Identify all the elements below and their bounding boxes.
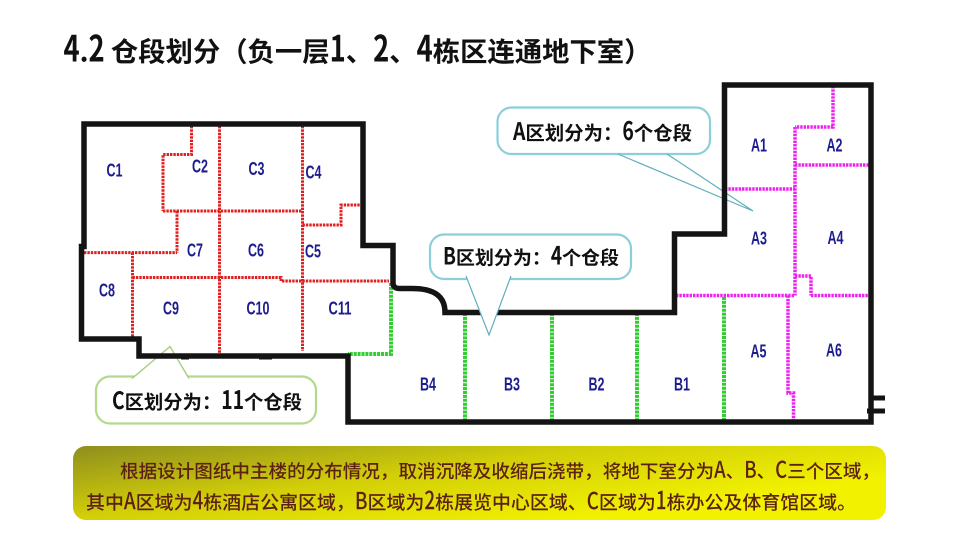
svg-text:C7: C7: [187, 240, 203, 260]
svg-text:C9: C9: [163, 298, 179, 318]
svg-text:B1: B1: [674, 374, 690, 394]
svg-text:A5: A5: [751, 341, 767, 361]
svg-text:C1: C1: [107, 160, 123, 180]
svg-text:A4: A4: [828, 228, 844, 248]
svg-text:A6: A6: [826, 340, 842, 360]
svg-text:B2: B2: [589, 374, 605, 394]
svg-text:B3: B3: [504, 374, 520, 394]
svg-text:C5: C5: [305, 241, 321, 261]
svg-text:C3: C3: [249, 159, 265, 179]
svg-text:B4: B4: [420, 374, 436, 394]
svg-text:C11: C11: [329, 298, 352, 318]
svg-text:C10: C10: [247, 298, 270, 318]
svg-text:C4: C4: [306, 162, 322, 182]
svg-text:C2: C2: [192, 156, 208, 176]
svg-text:A1: A1: [751, 135, 767, 155]
svg-text:A3: A3: [751, 228, 767, 248]
svg-text:C8: C8: [99, 280, 115, 300]
svg-text:A2: A2: [827, 135, 843, 155]
svg-text:C6: C6: [248, 240, 264, 260]
